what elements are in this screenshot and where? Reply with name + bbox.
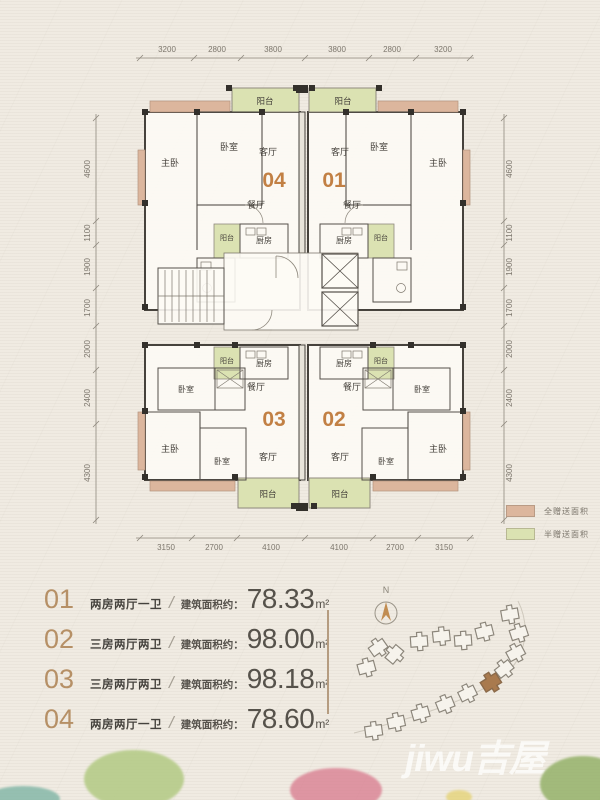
jiwu-watermark: jiwu吉屋 — [405, 728, 545, 782]
room-label-kitchen: 厨房 — [256, 358, 272, 368]
unit-row-area-prefix: 建筑面积约： — [181, 597, 244, 612]
tree-decoration — [0, 786, 60, 800]
unit-row-number: 01 — [44, 584, 90, 615]
dim-label: 1100 — [83, 224, 92, 242]
unit-number-04: 04 — [262, 169, 286, 192]
room-label-bedroom: 卧室 — [178, 384, 194, 394]
room-label-kitchen: 厨房 — [256, 235, 272, 245]
dim-label: 1900 — [83, 258, 92, 276]
dim-label: 1700 — [505, 299, 514, 317]
unit-row-area-value: 78.33 — [247, 583, 315, 615]
room-label-balcony: 阳台 — [220, 233, 234, 242]
room-label-dining-room: 餐厅 — [247, 199, 265, 210]
unit-row-03: 03 三房两厅两卫 / 建筑面积约： 98.18 m² — [44, 663, 344, 703]
unit-row-area-value: 98.18 — [247, 663, 315, 695]
room-label-bedroom: 卧室 — [220, 141, 238, 152]
room-label-balcony: 阳台 — [374, 356, 388, 365]
unit-row-area-unit: m² — [315, 717, 329, 731]
unit-row-type: 两房两厅一卫 — [90, 596, 162, 612]
dim-label: 3150 — [157, 543, 175, 552]
room-label-living-room: 客厅 — [259, 451, 277, 462]
full-gift-label: 全赠送面积 — [544, 506, 589, 517]
dim-label: 1100 — [505, 224, 514, 242]
tree-decoration — [290, 768, 382, 800]
legend: 全赠送面积 半赠送面积 — [506, 505, 589, 551]
room-label-balcony: 阳台 — [331, 489, 348, 499]
unit-row-separator: / — [169, 633, 174, 653]
dim-label: 2700 — [205, 543, 223, 552]
floor-plan-drawing: 3200 2800 3800 3800 2800 3200 3150 2700 … — [0, 0, 600, 575]
flower-decoration — [446, 790, 472, 800]
dim-label: 4300 — [505, 464, 514, 482]
dim-label: 2800 — [383, 45, 401, 54]
unit-row-separator: / — [169, 713, 174, 733]
unit-row-number: 04 — [44, 704, 90, 735]
half-gift-swatch — [506, 528, 535, 540]
floor-plan-page: 3200 2800 3800 3800 2800 3200 3150 2700 … — [0, 0, 600, 800]
room-label-bedroom: 卧室 — [414, 384, 430, 394]
unit-row-type: 两房两厅一卫 — [90, 716, 162, 732]
dim-label: 3200 — [158, 45, 176, 54]
dim-label: 3150 — [435, 543, 453, 552]
room-label-balcony: 阳台 — [334, 96, 351, 106]
legend-item-half-gift: 半赠送面积 — [506, 528, 589, 540]
room-label-dining-room: 餐厅 — [343, 199, 361, 210]
unit-row-02: 02 三房两厅两卫 / 建筑面积约： 98.00 m² — [44, 623, 344, 663]
unit-row-area-prefix: 建筑面积约： — [181, 677, 244, 692]
room-label-balcony: 阳台 — [220, 356, 234, 365]
unit-list: 01 两房两厅一卫 / 建筑面积约： 78.33 m² 02 三房两厅两卫 / … — [44, 583, 344, 743]
room-label-balcony: 阳台 — [374, 233, 388, 242]
unit-row-04: 04 两房两厅一卫 / 建筑面积约： 78.60 m² — [44, 703, 344, 743]
room-label-dining-room: 餐厅 — [343, 381, 361, 392]
unit-row-type: 三房两厅两卫 — [90, 676, 162, 692]
room-label-bedroom: 卧室 — [214, 456, 230, 466]
room-label-bedroom: 卧室 — [370, 141, 388, 152]
dim-label: 1900 — [505, 258, 514, 276]
room-label-master-bedroom: 主卧 — [429, 157, 447, 168]
site-buildings — [356, 604, 530, 741]
dim-label: 2000 — [505, 340, 514, 358]
room-label-living-room: 客厅 — [331, 451, 349, 462]
room-label-kitchen: 厨房 — [336, 358, 352, 368]
room-label-master-bedroom: 主卧 — [161, 443, 179, 454]
dim-label: 2700 — [386, 543, 404, 552]
dim-label: 4100 — [330, 543, 348, 552]
dim-label: 4300 — [83, 464, 92, 482]
room-label-master-bedroom: 主卧 — [429, 443, 447, 454]
unit-row-separator: / — [169, 593, 174, 613]
dim-label: 2000 — [83, 340, 92, 358]
room-label-living-room: 客厅 — [259, 146, 277, 157]
unit-row-number: 03 — [44, 664, 90, 695]
unit-row-area-prefix: 建筑面积约： — [181, 717, 244, 732]
room-label-kitchen: 厨房 — [336, 235, 352, 245]
unit-row-area-value: 98.00 — [247, 623, 315, 655]
unit-row-area-unit: m² — [315, 597, 329, 611]
dim-label: 4100 — [262, 543, 280, 552]
full-gift-swatch — [506, 505, 535, 517]
unit-row-area-prefix: 建筑面积约： — [181, 637, 244, 652]
legend-item-full-gift: 全赠送面积 — [506, 505, 589, 517]
unit-row-01: 01 两房两厅一卫 / 建筑面积约： 78.33 m² — [44, 583, 344, 623]
unit-row-separator: / — [169, 673, 174, 693]
room-label-master-bedroom: 主卧 — [161, 157, 179, 168]
tree-decoration — [84, 750, 184, 800]
half-gift-label: 半赠送面积 — [544, 529, 589, 540]
room-label-balcony: 阳台 — [259, 489, 276, 499]
room-label-balcony: 阳台 — [256, 96, 273, 106]
unit-number-02: 02 — [322, 408, 345, 431]
dim-label: 2400 — [83, 389, 92, 407]
dim-label: 3800 — [328, 45, 346, 54]
unit-number-03: 03 — [262, 408, 285, 431]
unit-number-01: 01 — [322, 169, 346, 192]
room-label-living-room: 客厅 — [331, 146, 349, 157]
dim-label: 3800 — [264, 45, 282, 54]
unit-row-area-value: 78.60 — [247, 703, 315, 735]
compass-north-label: N — [383, 585, 390, 595]
dim-label: 2400 — [505, 389, 514, 407]
list-divider — [327, 610, 329, 714]
dim-label: 1700 — [83, 299, 92, 317]
room-label-bedroom: 卧室 — [378, 456, 394, 466]
dim-label: 2800 — [208, 45, 226, 54]
room-label-dining-room: 餐厅 — [247, 381, 265, 392]
unit-row-number: 02 — [44, 624, 90, 655]
unit-row-type: 三房两厅两卫 — [90, 636, 162, 652]
dim-label: 3200 — [434, 45, 452, 54]
dim-label: 4600 — [505, 160, 514, 178]
dim-label: 4600 — [83, 160, 92, 178]
